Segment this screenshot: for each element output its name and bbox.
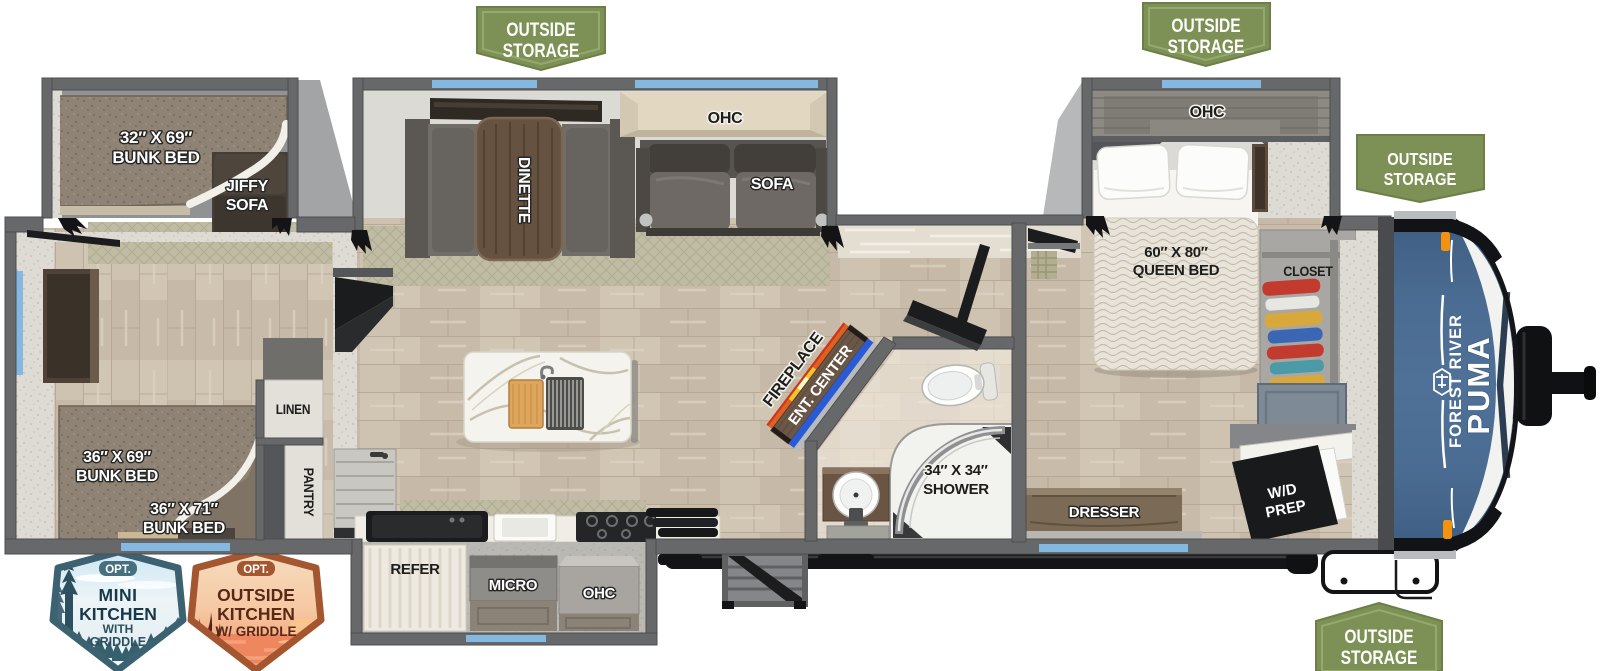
svg-text:PANTRY: PANTRY [301,468,317,517]
svg-text:GRIDDLE: GRIDDLE [90,635,146,649]
svg-text:QUEEN BED: QUEEN BED [1133,262,1220,279]
svg-text:BUNK BED: BUNK BED [76,468,158,485]
svg-text:KITCHEN: KITCHEN [217,604,295,624]
svg-text:OUTSIDE: OUTSIDE [1344,626,1413,648]
svg-text:OHC: OHC [583,585,616,602]
svg-text:36″ X 69″: 36″ X 69″ [83,449,151,466]
svg-text:PUMA: PUMA [1461,335,1496,434]
svg-text:DINETTE: DINETTE [515,157,532,224]
svg-text:WITH: WITH [103,622,134,636]
svg-text:JIFFY: JIFFY [226,178,269,195]
svg-text:STORAGE: STORAGE [1384,170,1457,190]
svg-text:DRESSER: DRESSER [1069,504,1140,521]
svg-text:60″ X 80″: 60″ X 80″ [1144,244,1207,261]
svg-text:OHC: OHC [708,110,743,127]
svg-text:OPT.: OPT. [105,564,131,576]
svg-text:OUTSIDE: OUTSIDE [217,585,295,605]
svg-text:OHC: OHC [1190,104,1225,121]
svg-text:STORAGE: STORAGE [1341,647,1418,669]
svg-text:SHOWER: SHOWER [923,481,989,498]
svg-text:W/ GRIDDLE: W/ GRIDDLE [216,624,297,639]
svg-text:OPT.: OPT. [243,564,269,576]
svg-text:REFER: REFER [390,561,440,578]
svg-text:OUTSIDE: OUTSIDE [1171,15,1240,37]
svg-text:OUTSIDE: OUTSIDE [506,19,575,41]
svg-text:CLOSET: CLOSET [1283,263,1333,279]
svg-text:BUNK BED: BUNK BED [143,520,225,537]
svg-text:LINEN: LINEN [276,401,310,417]
svg-text:MINI: MINI [99,585,138,605]
svg-text:MICRO: MICRO [489,577,538,594]
svg-text:SOFA: SOFA [751,176,794,193]
svg-text:OUTSIDE: OUTSIDE [1387,150,1453,170]
svg-text:SOFA: SOFA [226,197,269,214]
svg-text:KITCHEN: KITCHEN [79,604,157,624]
svg-text:STORAGE: STORAGE [1168,36,1245,58]
svg-text:34″ X 34″: 34″ X 34″ [924,462,987,479]
svg-text:36″ X 71″: 36″ X 71″ [150,501,218,518]
svg-text:STORAGE: STORAGE [503,40,580,62]
svg-text:32″ X 69″: 32″ X 69″ [120,128,192,147]
svg-text:BUNK BED: BUNK BED [112,148,199,167]
